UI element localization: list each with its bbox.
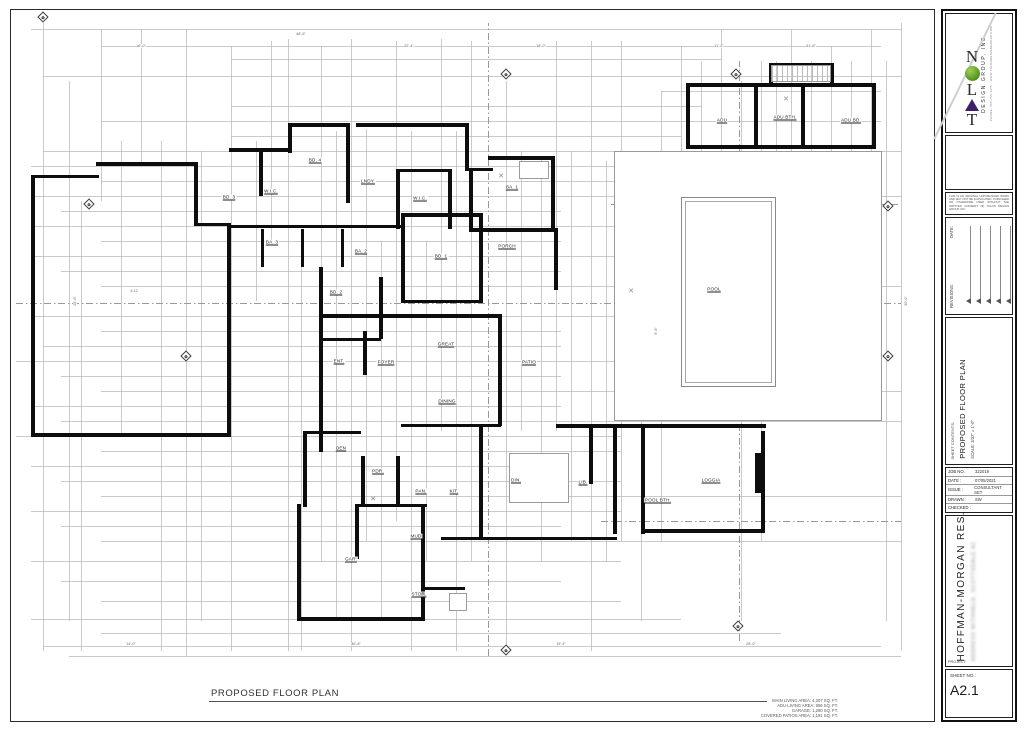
logo-letter: T — [967, 112, 977, 128]
wall-segment — [363, 331, 367, 375]
wall-segment — [288, 123, 350, 127]
wall-segment — [346, 123, 350, 203]
revisions-label: REVISIONS: — [949, 284, 954, 308]
grid-line — [591, 41, 592, 651]
grid-line — [101, 496, 901, 497]
sheet: ✕✕✕✕BD. 3W.I.C.BD. 4LNDY.W.I.C.BA. 1BA. … — [0, 0, 1024, 731]
revision-rule — [970, 226, 971, 298]
project-box: PROJECT: HOFFMAN-MORGAN RES. ADDRESS WIT… — [945, 515, 1013, 667]
wall-segment — [801, 85, 805, 145]
stair-hatch — [771, 65, 831, 82]
room-label: BA. 1 — [505, 185, 519, 190]
wall-segment — [441, 537, 617, 540]
logo-contact: PHONE: 555.755.1475 · WWW.TALONDESIGNGRO… — [989, 26, 993, 121]
room-label: DIN. — [510, 478, 522, 483]
dimension-text: 4:12 — [130, 289, 137, 293]
grid-line — [69, 656, 901, 657]
wall-segment — [423, 587, 465, 590]
wall-segment — [229, 225, 401, 228]
wall-segment — [96, 162, 196, 166]
room-label: PORCH — [497, 244, 517, 249]
job-field-label: DATE : — [948, 478, 975, 483]
grid-bubble-icon — [882, 350, 893, 361]
talon-logo: TLN DESIGN GROUP, INC. PHONE: 555.755.14… — [945, 13, 1013, 133]
wall-segment — [303, 431, 307, 507]
grid-line — [43, 346, 561, 347]
title-block: TLN DESIGN GROUP, INC. PHONE: 555.755.14… — [941, 9, 1017, 722]
room-label: ENT. — [333, 359, 346, 364]
room-label: GREAT — [437, 342, 455, 347]
wall-segment — [297, 617, 425, 621]
room-label: BD. 4 — [308, 158, 323, 163]
area-note-line: COVERED PATIOS AREA: 1,191 SQ. FT. — [761, 713, 838, 718]
grid-line — [31, 561, 621, 562]
grid-bubble-dot — [736, 624, 740, 628]
grid-line — [791, 29, 792, 161]
grid-line — [61, 271, 561, 272]
wall-segment — [357, 504, 427, 507]
wall-segment — [303, 431, 361, 434]
wall-segment — [31, 175, 99, 178]
x-fixture-icon: ✕ — [783, 95, 789, 103]
job-info-box: JOB NO. 322019 DATE : 07/05/2021 ISSUE :… — [945, 467, 1013, 512]
revision-rule — [990, 226, 991, 298]
x-fixture-icon: ✕ — [628, 287, 634, 295]
grid-line — [101, 331, 561, 332]
wall-segment — [465, 123, 469, 171]
dimension-text: 14'-0" — [126, 642, 136, 646]
grid-line — [61, 211, 561, 212]
wall-segment — [448, 171, 452, 229]
wall-segment — [488, 156, 554, 160]
sheet-contents-scale: SCALE: 3/32" = 1'-0" — [970, 420, 975, 459]
room-label: FOYER — [377, 360, 396, 365]
plan-title-rule — [209, 701, 767, 702]
revision-delta-icon — [976, 298, 981, 304]
job-row: ISSUE : CONSULTANT SET — [946, 485, 1012, 496]
room-label: BA. 2 — [354, 249, 368, 254]
revision-delta-icon — [986, 298, 991, 304]
copyright-notice: THIS IS AN ORIGINAL UNPUBLISHED WORK AND… — [949, 195, 1009, 212]
grid-line — [426, 241, 427, 561]
room-label: LNDY. — [360, 179, 376, 184]
grid-line — [141, 29, 142, 166]
wall-segment — [396, 456, 400, 506]
room-label: ADU BTH. — [772, 115, 797, 120]
grid-line — [661, 91, 881, 92]
grid-bubble-dot — [41, 15, 45, 19]
wall-segment — [194, 162, 198, 226]
wall-segment — [401, 300, 483, 303]
grid-line — [521, 151, 522, 431]
wall-segment — [319, 338, 381, 341]
dimension-text: 28'-0" — [746, 642, 756, 646]
grid-bubble-icon — [83, 198, 94, 209]
logo-o-ball-icon — [965, 66, 980, 81]
room-label: POOL BTH. — [644, 498, 672, 503]
plan-frame: ✕✕✕✕BD. 3W.I.C.BD. 4LNDY.W.I.C.BA. 1BA. … — [10, 9, 935, 722]
grid-line — [231, 106, 701, 107]
job-field-value: SW — [975, 497, 982, 502]
job-row: DRAWN : SW — [946, 496, 1012, 504]
grid-line — [201, 151, 202, 621]
logo-letter: N — [966, 49, 978, 65]
grid-line — [396, 41, 397, 521]
wall-segment — [641, 529, 765, 533]
wall-segment — [355, 504, 359, 559]
revision-delta-icon — [966, 298, 971, 304]
sheet-contents-title: PROPOSED FLOOR PLAN — [958, 359, 967, 459]
job-field-label: ISSUE : — [948, 487, 974, 492]
revisions-box: DATE: REVISIONS: — [945, 217, 1013, 315]
room-label: MUD — [409, 534, 422, 539]
wall-segment — [872, 83, 876, 149]
job-field-label: CHECKED : — [948, 505, 975, 510]
sheet-contents-label: SHEET CONTENTS: — [950, 422, 955, 460]
dimension-text: 9'-6" — [654, 327, 658, 335]
wall-segment — [31, 433, 231, 437]
grid-bubble-dot — [886, 354, 890, 358]
floor-plan-canvas: ✕✕✕✕BD. 3W.I.C.BD. 4LNDY.W.I.C.BA. 1BA. … — [11, 10, 934, 721]
wall-segment — [401, 213, 483, 217]
grid-bubble-dot — [87, 202, 91, 206]
centerline — [488, 23, 489, 656]
wall-segment — [401, 424, 501, 427]
job-field-label: DRAWN : — [948, 497, 975, 502]
centerline — [601, 521, 901, 522]
grid-line — [69, 81, 70, 621]
grid-line — [901, 23, 902, 651]
sheet-number-label: SHEET NO.: — [950, 673, 1008, 678]
dimension-text: 36'-8" — [351, 642, 361, 646]
project-name: HOFFMAN-MORGAN RES. — [956, 511, 967, 662]
wall-segment — [31, 175, 35, 437]
wall-segment — [551, 156, 555, 232]
room-label: W.I.C. — [412, 196, 428, 201]
room-label: ADU BD. — [840, 118, 862, 123]
date-label: DATE: — [949, 226, 954, 238]
wall-segment — [379, 277, 383, 339]
x-fixture-icon: ✕ — [370, 495, 376, 503]
room-label: PATIO — [521, 360, 537, 365]
wall-segment — [479, 426, 483, 537]
room-label: KIT. — [449, 489, 460, 494]
dimension-text: 19'-4" — [556, 642, 566, 646]
job-field-value: 07/05/2021 — [975, 478, 996, 483]
room-label: PAN. — [414, 489, 427, 494]
sheet-number-value: A2.1 — [950, 682, 1008, 698]
grid-bubble-dot — [886, 204, 890, 208]
dimension-text: 22'-4" — [404, 44, 414, 48]
grid-line — [31, 29, 901, 30]
dimension-text: 31'-8" — [806, 44, 816, 48]
wall-segment — [356, 123, 468, 127]
grid-line — [43, 646, 881, 647]
room-label: POOL — [706, 287, 722, 292]
grid-bubble-dot — [184, 354, 188, 358]
grid-bubble-dot — [504, 648, 508, 652]
job-row: DATE : 07/05/2021 — [946, 477, 1012, 485]
logo-subtitle: DESIGN GROUP, INC. — [981, 33, 987, 113]
grid-line — [43, 23, 44, 651]
grid-line — [31, 406, 561, 407]
wall-segment — [469, 168, 473, 230]
room-label: LIB. — [578, 480, 589, 485]
grid-line — [61, 421, 901, 422]
copyright-notice-box: THIS IS AN ORIGINAL UNPUBLISHED WORK AND… — [945, 192, 1013, 216]
room-label: BD. 1 — [434, 254, 449, 259]
wall-segment — [261, 229, 264, 267]
wall-segment — [396, 171, 400, 229]
grid-line — [101, 633, 781, 634]
logo-letter: L — [967, 82, 977, 98]
grid-line — [161, 141, 162, 651]
project-address-redacted: ADDRESS WITHHELD, SCOTTSDALE AZ — [971, 541, 977, 661]
grid-bubble-icon — [37, 11, 48, 22]
job-field-value: CONSULTANT SET — [974, 485, 1010, 495]
room-label: GAR. — [344, 557, 358, 562]
wall-segment — [396, 169, 452, 172]
grid-line — [721, 29, 722, 161]
fixture — [449, 593, 467, 611]
area-notes: MAIN LIVING AREA: 4,307 SQ. FT. ADU LIVI… — [761, 698, 838, 718]
grid-line — [571, 151, 572, 541]
sheet-contents-box: SHEET CONTENTS: PROPOSED FLOOR PLAN SCAL… — [945, 317, 1013, 465]
wall-segment — [589, 424, 593, 484]
room-label: BD. 2 — [329, 290, 344, 295]
room-label: W.I.C. — [263, 189, 279, 194]
wall-segment — [361, 456, 365, 506]
plan-title: PROPOSED FLOOR PLAN — [211, 688, 339, 699]
grid-line — [101, 601, 621, 602]
fixture — [519, 161, 549, 179]
revision-rule — [980, 226, 981, 298]
wall-segment — [689, 145, 876, 149]
dimension-text: 16'-0" — [136, 44, 146, 48]
wall-segment — [754, 85, 758, 145]
room-label: BA. 3 — [265, 240, 279, 245]
wall-segment — [479, 213, 483, 303]
job-row: JOB NO. 322019 — [946, 468, 1012, 476]
room-label: ADU — [716, 118, 728, 123]
grid-line — [81, 201, 82, 651]
wall-segment — [554, 228, 558, 290]
dimension-text: 48'-6" — [296, 32, 306, 36]
wall-segment — [319, 314, 501, 318]
wall-segment — [197, 223, 229, 226]
job-field-value: 322019 — [975, 469, 989, 474]
revision-rule — [1000, 226, 1001, 298]
grid-line — [101, 46, 881, 47]
grid-line — [101, 29, 102, 201]
room-label: STOR. — [411, 592, 428, 597]
room-label: DINING — [437, 399, 456, 404]
grid-line — [231, 59, 721, 60]
grid-line — [31, 511, 621, 512]
grid-bubble-dot — [504, 72, 508, 76]
room-label: DEN — [335, 446, 347, 451]
wall-segment — [421, 504, 425, 561]
x-fixture-icon: ✕ — [498, 172, 504, 180]
grid-bubble-icon — [732, 620, 743, 631]
dimension-text: 11'-2" — [714, 44, 723, 48]
logo-wordmark: TLN — [965, 14, 980, 132]
revision-rule — [1010, 226, 1011, 298]
sheet-number-box: SHEET NO.: A2.1 — [945, 669, 1013, 718]
revision-delta-icon — [1006, 298, 1011, 304]
job-field-label: JOB NO. — [948, 469, 975, 474]
grid-line — [231, 136, 681, 137]
grid-line — [441, 39, 442, 431]
wall-segment — [288, 123, 292, 153]
wall-segment — [227, 223, 231, 437]
wall-segment — [689, 83, 876, 87]
wall-segment — [755, 453, 765, 493]
grid-line — [886, 61, 887, 621]
grid-bubble-icon — [180, 350, 191, 361]
grid-line — [101, 241, 561, 242]
room-label: PDR. — [371, 469, 385, 474]
wall-segment — [401, 213, 405, 303]
grid-line — [101, 541, 901, 542]
grid-bubble-icon — [500, 68, 511, 79]
grid-line — [61, 376, 561, 377]
wall-segment — [686, 83, 690, 149]
wall-segment — [341, 229, 344, 267]
wall-segment — [613, 428, 617, 534]
grid-line — [31, 166, 681, 167]
stamp-box — [945, 135, 1013, 189]
wall-segment — [641, 428, 645, 534]
grid-line — [256, 141, 257, 301]
dimension-text: 30'-0" — [904, 296, 908, 306]
wall-segment — [498, 314, 502, 426]
wall-segment — [301, 229, 304, 267]
wall-segment — [297, 504, 301, 620]
revision-delta-icon — [996, 298, 1001, 304]
dimension-text: 24'-6" — [73, 296, 77, 306]
wall-segment — [556, 424, 766, 428]
grid-line — [61, 526, 561, 527]
pool-outline — [685, 201, 772, 383]
grid-bubble-icon — [882, 200, 893, 211]
room-label: BD. 3 — [222, 195, 237, 200]
room-label: LOGGIA — [701, 478, 722, 483]
grid-line — [101, 121, 881, 122]
dimension-text: 18'-0" — [536, 44, 546, 48]
grid-line — [101, 451, 621, 452]
grid-bubble-dot — [734, 72, 738, 76]
grid-line — [61, 581, 561, 582]
